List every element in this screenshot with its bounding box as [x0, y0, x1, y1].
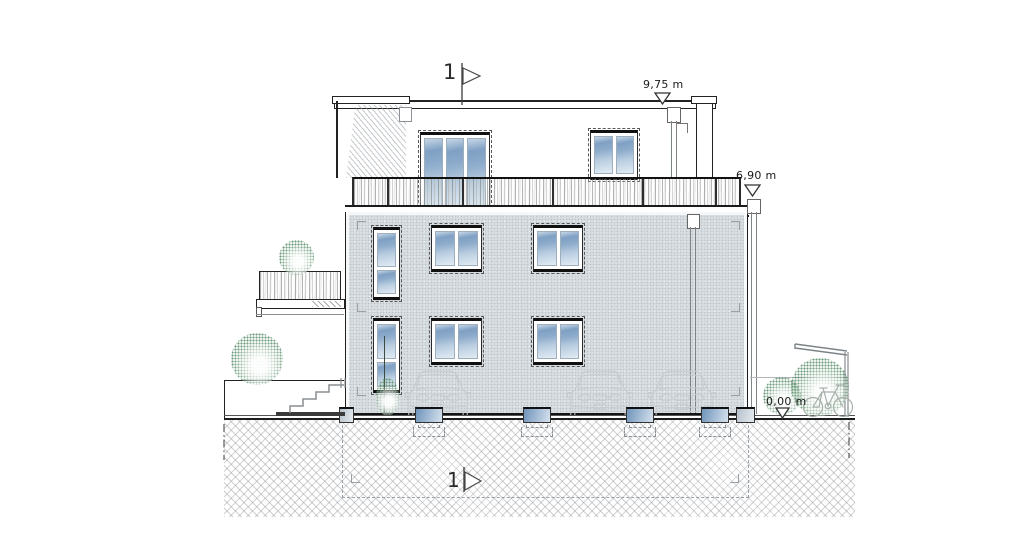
railing-post: [387, 179, 389, 208]
property-line-marker-right: [847, 422, 851, 458]
bush-on-balcony: [279, 240, 314, 275]
roof-parapet-left-cap: [332, 96, 410, 104]
facade-corner-mark: [357, 387, 366, 396]
penthouse-left-wall-line: [336, 101, 338, 178]
footing-cap: [701, 407, 729, 423]
balcony-slab-hatch: [312, 301, 341, 307]
glass-pane: [377, 270, 396, 294]
glass-pane: [435, 231, 455, 266]
window-lower-right: [533, 318, 583, 365]
level-label-terrace-text: 6,90 m: [736, 169, 777, 182]
section-number-text: 1: [447, 468, 460, 492]
balcony-support-lip: [256, 307, 262, 317]
glass-pane: [435, 324, 455, 359]
penthouse-wall-shade-hatch: [346, 105, 406, 178]
downpipe-bracket: [676, 123, 688, 133]
glass-pane: [458, 231, 478, 266]
level-label-roof: 9,75 m: [643, 78, 684, 91]
downpipe-outlet-roof-left: [399, 107, 412, 122]
penthouse-stair-bulkhead: [696, 102, 713, 178]
window-lower-left: [431, 318, 482, 365]
facade-corner-mark: [731, 221, 740, 230]
bush-large-left: [231, 333, 283, 385]
level-label-roof-text: 9,75 m: [643, 78, 684, 91]
glass-pane: [616, 136, 635, 174]
elevation-canvas: 9,75 m 6,90 m 0,00 m 1 1: [0, 0, 1027, 545]
glass-pane: [458, 324, 478, 359]
footing-base-dashed: [413, 427, 445, 437]
glass-pane: [377, 324, 396, 359]
bulkhead-cap: [691, 96, 717, 104]
downpipe-right: [751, 212, 757, 414]
sapling-bush: [376, 378, 399, 416]
facade-corner-mark: [357, 303, 366, 312]
ghost-car: [566, 365, 634, 416]
footing-cap: [523, 407, 551, 423]
section-marker-top-number: 1: [443, 62, 456, 83]
footing-cap-corner: [736, 407, 755, 423]
footing-cap: [415, 407, 443, 423]
railing-post: [715, 179, 717, 208]
level-marker-icon: [774, 407, 791, 419]
section-flag-icon: [461, 466, 485, 496]
railing-post: [462, 179, 464, 208]
glass-pane: [377, 233, 396, 267]
footing-base-dashed: [521, 427, 553, 437]
section-marker-bottom-number: 1: [447, 470, 460, 490]
balcony-underside-line: [256, 314, 344, 315]
facade-corner-mark: [357, 221, 366, 230]
level-label-terrace: 6,90 m: [736, 169, 777, 182]
footing-cap: [626, 407, 654, 423]
facade-corner-mark: [731, 387, 740, 396]
window-upper-right: [533, 225, 583, 272]
glass-pane: [560, 324, 580, 359]
facade-corner-mark: [731, 303, 740, 312]
exterior-stairs: [270, 376, 348, 418]
glass-pane: [594, 136, 613, 174]
glass-pane: [560, 231, 580, 266]
ghost-bicycle: [801, 380, 855, 418]
footing-base-dashed: [624, 427, 656, 437]
glass-pane: [537, 324, 557, 359]
basement-corner-mark-right: [730, 474, 739, 483]
section-number-text: 1: [443, 60, 456, 84]
railing-post: [642, 179, 644, 208]
window-upper-left: [431, 225, 482, 272]
balcony-railing: [259, 271, 341, 301]
section-flag-icon: [458, 60, 484, 107]
railing-post: [552, 179, 554, 208]
property-line-marker-left: [222, 424, 226, 460]
level-marker-icon: [743, 184, 762, 197]
basement-corner-mark-left: [351, 474, 360, 483]
penthouse-window: [590, 130, 638, 180]
footing-base-dashed: [699, 427, 731, 437]
glass-pane: [537, 231, 557, 266]
level-marker-icon: [653, 92, 672, 105]
window-upper-narrow: [373, 227, 400, 300]
